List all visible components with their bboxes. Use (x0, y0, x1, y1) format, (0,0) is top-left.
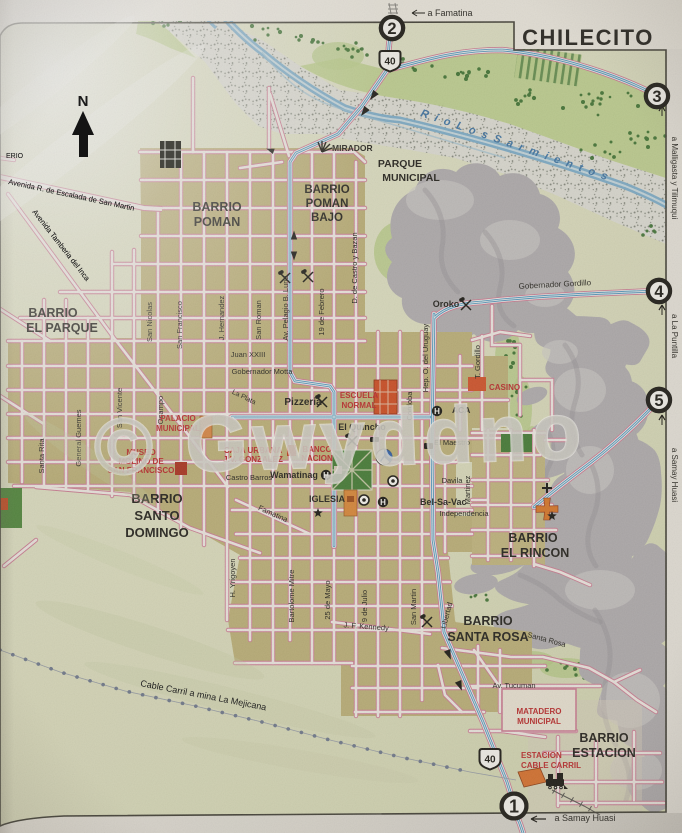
svg-text:ERIO: ERIO (6, 153, 24, 160)
svg-text:N: N (78, 93, 89, 110)
